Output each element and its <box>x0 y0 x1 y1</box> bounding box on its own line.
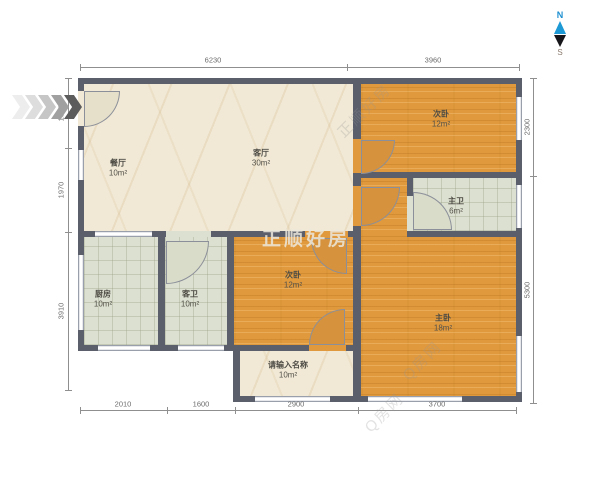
compass: N S <box>548 10 572 57</box>
dim-right-1: 2300 <box>523 119 532 136</box>
tick <box>65 232 72 233</box>
opening-bedroom2-tr <box>353 139 361 173</box>
room-living-dining-floor <box>84 84 353 231</box>
dim-top-2: 3960 <box>425 56 442 65</box>
entrance-arrows-icon <box>12 95 84 119</box>
dim-bottom-4: 3700 <box>429 400 446 409</box>
wall-bedroom2tr-bottom <box>353 172 516 178</box>
opening-guest-bath <box>166 231 211 237</box>
dim-right-2: 5300 <box>523 282 532 299</box>
compass-south-label: S <box>548 48 572 57</box>
tick <box>80 407 81 414</box>
wall-guestbath-bedroom2mid <box>227 237 234 345</box>
dim-left-3: 3910 <box>57 303 66 320</box>
dim-line-top <box>80 67 520 68</box>
tick <box>530 176 537 177</box>
dim-top-1: 6230 <box>205 56 222 65</box>
wall-outer-step <box>233 351 240 402</box>
label-bedroom2-tr: 次卧12m² <box>432 110 450 131</box>
dim-line-bottom <box>80 410 517 411</box>
tick <box>530 403 537 404</box>
label-unnamed-room: 请输入名称10m² <box>268 361 308 382</box>
floor-plan: 餐厅10m² 客厅30m² 次卧12m² 主卫6m² 厨房10m² 客卫10m²… <box>0 0 600 479</box>
window-kitchen-pass <box>95 231 152 237</box>
dim-left-2: 1970 <box>57 182 66 199</box>
window-kitchen-left <box>78 255 84 330</box>
label-kitchen: 厨房10m² <box>94 290 112 311</box>
dim-line-left <box>68 78 69 390</box>
window-living-left <box>78 150 84 180</box>
opening-unnamed-room <box>309 345 346 351</box>
label-bedroom2-mid: 次卧12m² <box>284 271 302 292</box>
window-master-right <box>516 336 522 392</box>
label-master-bath: 主卫6m² <box>448 197 464 218</box>
dim-bottom-2: 1600 <box>193 400 210 409</box>
tick <box>65 148 72 149</box>
tick <box>65 78 72 79</box>
dim-line-right <box>533 78 534 404</box>
tick <box>358 407 359 414</box>
tick <box>519 64 520 71</box>
compass-north-arrow-icon <box>554 21 566 34</box>
window-kitchen-bottom <box>98 345 150 351</box>
chevron-icon <box>12 95 30 119</box>
dim-bottom-3: 2900 <box>288 400 305 409</box>
tick <box>530 78 537 79</box>
window-master-bottom <box>368 396 462 402</box>
label-living: 客厅30m² <box>252 149 270 170</box>
label-master-bedroom: 主卧18m² <box>434 314 452 335</box>
wall-kitchen-guestbath <box>158 237 165 345</box>
opening-master-bedroom <box>353 186 361 226</box>
window-guestbath-bottom <box>178 345 224 351</box>
dim-bottom-1: 2010 <box>115 400 132 409</box>
compass-north-label: N <box>548 10 572 20</box>
wall-outer-top <box>78 78 522 84</box>
label-guest-bath: 客卫10m² <box>181 290 199 311</box>
compass-south-arrow-icon <box>554 35 566 47</box>
label-dining: 餐厅10m² <box>109 159 127 180</box>
tick <box>516 407 517 414</box>
tick <box>65 390 72 391</box>
window-bedroom2-tr-right <box>516 97 522 140</box>
opening-bedroom2-mid <box>305 231 348 237</box>
tick <box>235 407 236 414</box>
tick <box>80 64 81 71</box>
wall-masterbath-master <box>407 231 516 237</box>
tick <box>167 407 168 414</box>
window-master-bath-right <box>516 185 522 228</box>
tick <box>347 64 348 71</box>
